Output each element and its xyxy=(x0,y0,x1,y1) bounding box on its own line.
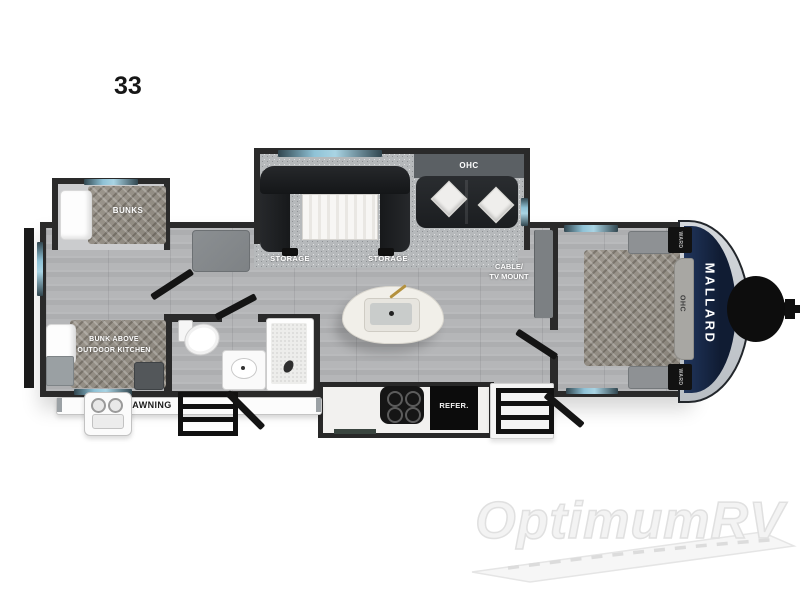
wardrobe-top-label: WARD xyxy=(677,228,683,252)
tv-mount-panel xyxy=(534,230,553,318)
window-rear-wall xyxy=(37,242,43,296)
rear-nightstand xyxy=(46,356,74,386)
step-rung xyxy=(501,429,549,434)
propane-tank xyxy=(727,276,785,342)
ohc-label: OHC xyxy=(414,161,524,170)
step-rung xyxy=(183,404,233,409)
u-dinette-sofa xyxy=(260,166,410,194)
brand-label: MALLARD xyxy=(703,254,718,354)
vanity-faucet-dot xyxy=(241,366,245,370)
counter-accent xyxy=(334,429,376,434)
wardrobe-bottom-label: WARD xyxy=(677,365,683,389)
rear-bunk-label: BUNK ABOVE OUTDOOR KITCHEN xyxy=(56,334,172,356)
awning-endcap-right xyxy=(316,398,321,412)
watermark-text: OptimumRV xyxy=(475,492,788,550)
loveseat-cushion-divider xyxy=(465,180,468,224)
burner-icon xyxy=(387,407,403,423)
nightstand-top xyxy=(628,231,672,254)
dinette-table xyxy=(302,194,378,240)
storage-label-left: STORAGE xyxy=(260,254,320,263)
refrigerator-label: REFER. xyxy=(430,401,478,410)
hall-cabinet xyxy=(192,230,250,272)
rear-bumper xyxy=(24,228,34,388)
window-bedroom-bottom xyxy=(566,388,618,394)
cable-label-line2: TV MOUNT xyxy=(476,272,542,282)
burner-icon xyxy=(405,391,421,407)
griddle-knob-icon xyxy=(108,398,123,413)
burner-icon xyxy=(387,391,403,407)
outdoor-kitchen-interior-unit xyxy=(134,362,164,390)
window-loveseat-side xyxy=(521,198,528,226)
rear-bunk-label-line2: OUTDOOR KITCHEN xyxy=(56,345,172,356)
step-rung xyxy=(183,431,233,436)
sink-drain-dot xyxy=(389,311,394,316)
burner-icon xyxy=(405,407,421,423)
step-rung xyxy=(183,417,233,422)
cable-label-line1: CABLE/ xyxy=(476,262,542,272)
floorplan-canvas: OptimumRV 33 MALLARD BUNKS OHC xyxy=(0,0,800,600)
cable-tv-mount-label: CABLE/ TV MOUNT xyxy=(476,262,542,282)
window-sofa-slide xyxy=(278,150,382,157)
shower-pan xyxy=(271,323,307,384)
griddle-knob-icon xyxy=(91,398,106,413)
step-rung xyxy=(501,401,549,406)
griddle-tray xyxy=(92,414,124,429)
optimumrv-watermark: OptimumRV xyxy=(468,476,798,592)
bunks-bed xyxy=(88,186,166,244)
rear-bunk-label-line1: BUNK ABOVE xyxy=(56,334,172,345)
bedroom-ohc-label: OHC xyxy=(679,286,686,322)
storage-label-right: STORAGE xyxy=(358,254,418,263)
window-bedroom-top xyxy=(564,225,618,232)
window-bunks-slide xyxy=(84,179,138,185)
step-rung xyxy=(501,415,549,420)
bunks-pillow xyxy=(60,190,92,240)
bunks-label: BUNKS xyxy=(96,206,160,215)
step-rung xyxy=(501,388,549,393)
bathroom-wall-top-left xyxy=(164,314,222,322)
queen-bed xyxy=(584,250,680,366)
nightstand-bottom xyxy=(628,366,672,389)
model-number-label: 33 xyxy=(114,72,142,101)
awning-endcap-left xyxy=(57,398,62,412)
hitch-ball xyxy=(793,305,800,313)
